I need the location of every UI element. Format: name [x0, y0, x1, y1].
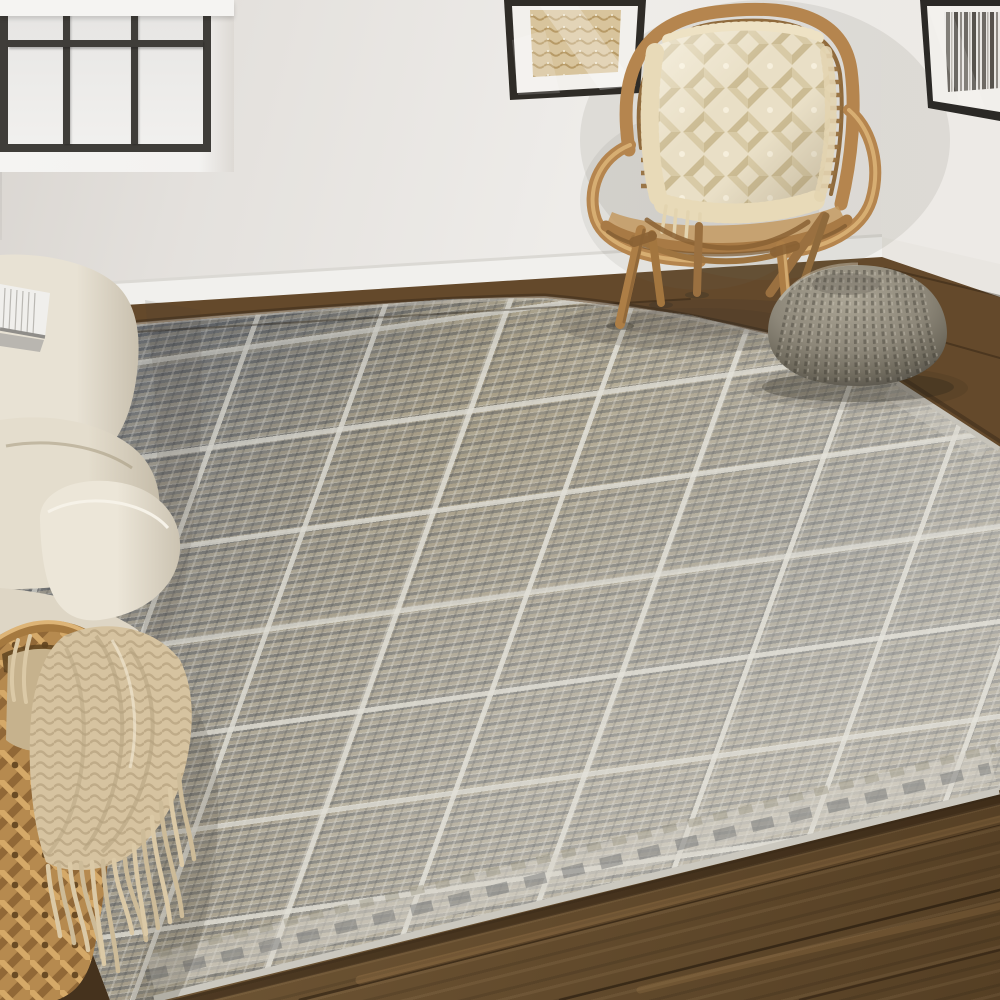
fringe-strand	[114, 860, 132, 933]
living-room-scene	[0, 0, 1000, 1000]
scene-overlay	[0, 0, 1000, 1000]
book	[0, 284, 50, 352]
wall-art-right	[920, 0, 1000, 121]
chair-pillow	[650, 27, 831, 240]
